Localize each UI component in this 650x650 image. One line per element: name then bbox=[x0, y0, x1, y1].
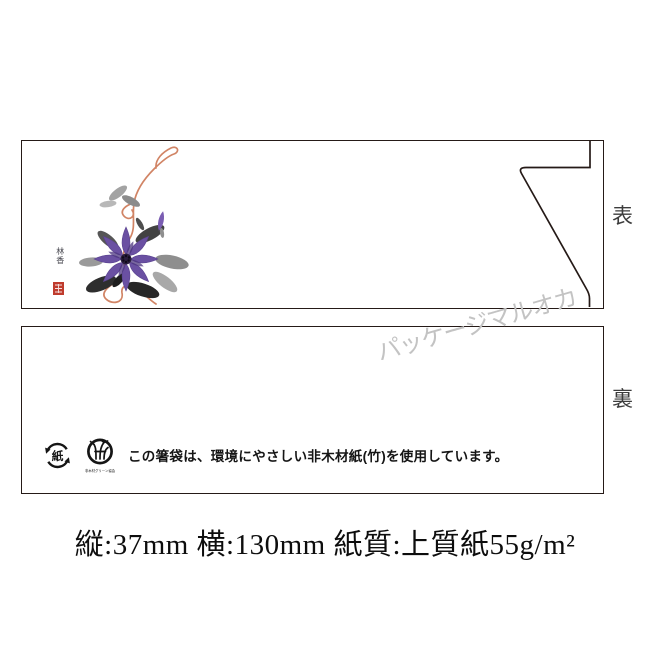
non-wood-green-icon: 非木材グリーン協会 bbox=[83, 436, 117, 474]
ink-leaves bbox=[79, 183, 190, 302]
front-view-label: 表 bbox=[612, 206, 633, 227]
front-panel: 林香 bbox=[21, 140, 604, 309]
back-panel: 紙 非木材グリーン協会 この箸袋は、環境にやさしい非木材紙(竹)を使用しています… bbox=[21, 326, 604, 494]
eco-notice-row: 紙 非木材グリーン協会 この箸袋は、環境にやさしい非木材紙(竹)を使用しています… bbox=[43, 437, 508, 473]
front-artwork bbox=[22, 141, 602, 307]
clematis-flower bbox=[94, 227, 158, 291]
artist-signature: 林香 bbox=[55, 247, 64, 265]
die-cut-notch bbox=[520, 141, 590, 307]
eco-notice-text: この箸袋は、環境にやさしい非木材紙(竹)を使用しています。 bbox=[128, 445, 508, 465]
paper-recycle-glyph: 紙 bbox=[52, 448, 64, 462]
paper-recycle-icon: 紙 bbox=[43, 441, 72, 470]
back-view-label: 裏 bbox=[612, 389, 633, 410]
artist-seal-stamp bbox=[53, 282, 64, 295]
non-wood-green-caption: 非木材グリーン協会 bbox=[85, 468, 116, 473]
spec-caption: 縦:37mm 横:130mm 紙質:上質紙55g/m² bbox=[0, 521, 650, 563]
